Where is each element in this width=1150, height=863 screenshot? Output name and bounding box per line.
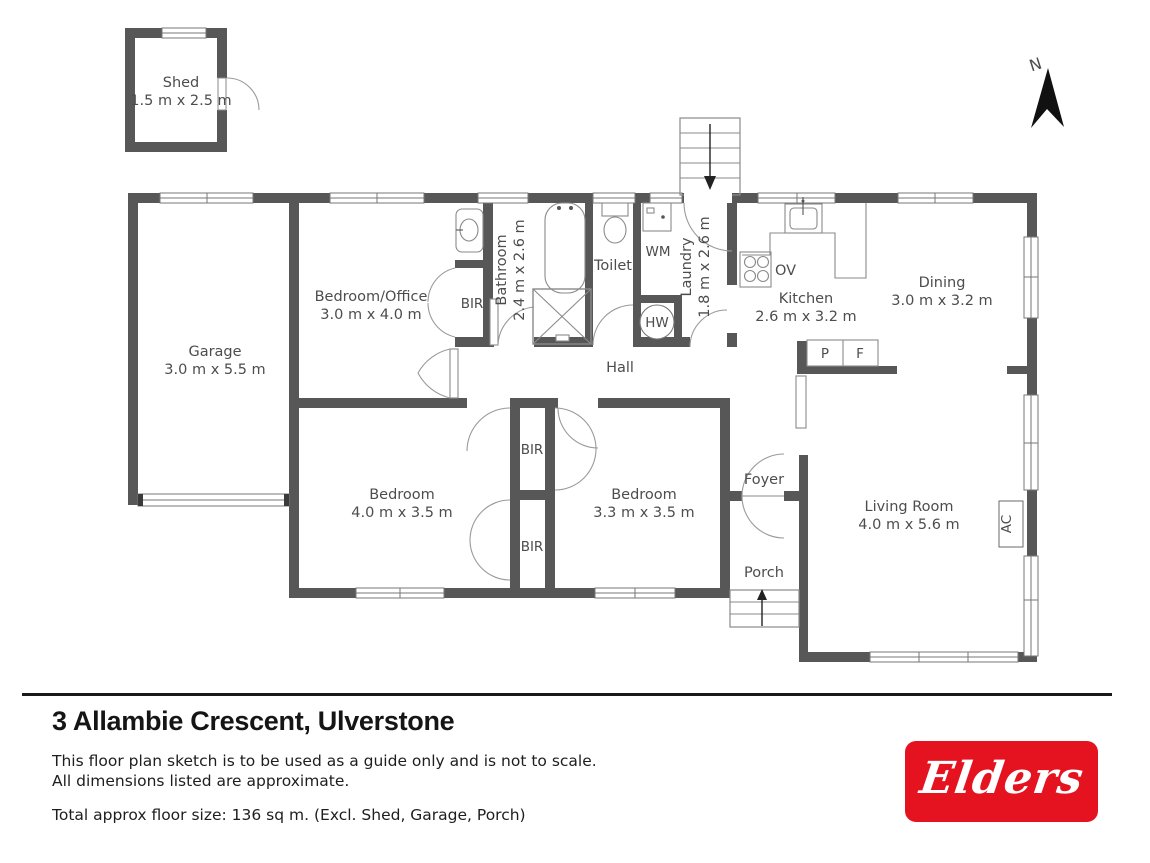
north-arrow: N [1027, 54, 1064, 128]
up-arrow-icon [757, 589, 767, 600]
door-bedroom-second [558, 408, 598, 448]
hw-label: HW [645, 315, 669, 331]
front-door [742, 454, 784, 538]
wall-dining-nib [1007, 366, 1027, 374]
laundry-dims: 1.8 m x 2.6 m [697, 216, 713, 317]
window-living-bottom [870, 652, 1018, 662]
wall-hall-south-a [289, 398, 467, 408]
shed-wall-bottom [125, 142, 227, 152]
dining-label: Dining [919, 275, 966, 291]
window-laundry [650, 193, 682, 203]
window-living-east-upper [1024, 395, 1038, 490]
foyer-label: Foyer [744, 472, 784, 488]
window-living-east-lower [1024, 556, 1038, 656]
elders-logo-text: Elders [916, 753, 1087, 810]
bathroom-dims: 2.4 m x 2.6 m [512, 219, 528, 320]
bathtub [545, 203, 585, 293]
laundry-label: Laundry [679, 237, 695, 297]
oven-cooktop [740, 252, 771, 287]
wall-hall-south-c [598, 398, 730, 408]
shed-wall-left [125, 28, 135, 152]
north-arrow-glyph [1031, 68, 1064, 128]
shed-dims: 1.5 m x 2.5 m [130, 93, 231, 109]
hall-label: Hall [606, 360, 634, 376]
wall-frontdoor-stub-right [784, 491, 799, 501]
shed: Shed 1.5 m x 2.5 m [125, 28, 259, 152]
garage-door [138, 494, 289, 506]
ac-label: AC [999, 515, 1015, 533]
wall-toilet-laundry [633, 203, 641, 337]
wm-label: WM [646, 244, 671, 260]
floor-plan-page: Shed 1.5 m x 2.5 m N [0, 0, 1150, 863]
shed-window [162, 28, 206, 38]
wall-hall-south-b [510, 398, 558, 408]
door-kitchen-cavity [796, 376, 806, 428]
fridge-label: F [856, 346, 864, 362]
wall-living-west [799, 455, 808, 662]
bedroom-office-label: Bedroom/Office [315, 289, 428, 305]
toilet-fixture [602, 203, 628, 243]
property-title: 3 Allambie Crescent, Ulverstone [52, 706, 454, 737]
window-bathroom [478, 193, 528, 203]
shed-label: Shed [163, 75, 200, 91]
footer-divider [22, 693, 1112, 696]
bathroom-label: Bathroom [494, 234, 510, 305]
wall-hall-north-d [682, 337, 690, 347]
shed-wall-right-upper [217, 28, 227, 78]
living-dims: 4.0 m x 5.6 m [858, 517, 959, 533]
wall-kitchen-stub [727, 333, 737, 347]
bedroom-office-dims: 3.0 m x 4.0 m [320, 307, 421, 323]
wall-hw-nook-right [674, 303, 682, 337]
door-toilet [593, 305, 633, 345]
elders-logo: Elders [905, 741, 1098, 822]
porch-steps [730, 589, 799, 627]
bedroom-second-dims: 3.3 m x 3.5 m [593, 505, 694, 521]
porch-label: Porch [744, 565, 784, 581]
bedroom-main-label: Bedroom [369, 487, 435, 503]
dining-dims: 3.0 m x 3.2 m [891, 293, 992, 309]
wall-bir-divider [510, 490, 555, 500]
bir-office-label: BIR [461, 296, 484, 312]
door-bedroom-main [467, 408, 510, 451]
wall-left [128, 203, 138, 505]
wall-laundry-kitchen [727, 203, 737, 285]
window-bedroom-second [595, 588, 675, 598]
wall-frontdoor-stub-left [730, 491, 742, 501]
north-label: N [1027, 54, 1044, 76]
door-bedroom-office [418, 349, 458, 398]
floor-plan-drawing: Shed 1.5 m x 2.5 m N [0, 0, 1150, 700]
wall-bedroom2-east [720, 398, 730, 598]
shower [533, 289, 591, 344]
living-label: Living Room [864, 499, 953, 515]
wall-hw-nook-top [633, 295, 682, 303]
garage-label: Garage [188, 344, 241, 360]
toilet-label: Toilet [593, 258, 632, 274]
down-arrow-icon [704, 176, 716, 190]
wall-nook-east [483, 203, 493, 268]
wall-pantry [797, 366, 897, 374]
bedroom-main-dims: 4.0 m x 3.5 m [351, 505, 452, 521]
window-bedroom-main [356, 588, 444, 598]
washing-machine [643, 203, 671, 231]
wall-bath-toilet [585, 203, 593, 345]
total-floor-size: Total approx floor size: 136 sq m. (Excl… [52, 806, 526, 824]
disclaimer-line-2: All dimensions listed are approximate. [52, 772, 349, 790]
house-walls [128, 193, 1037, 662]
kitchen-label: Kitchen [779, 291, 834, 307]
window-bedroom-office [330, 193, 424, 203]
bedroom-second-label: Bedroom [611, 487, 677, 503]
window-dining-top [898, 193, 973, 203]
bir-top-label: BIR [521, 442, 544, 458]
vanity [456, 209, 483, 252]
window-kitchen [758, 193, 835, 203]
bifold-bir-bottom [470, 500, 510, 580]
kitchen-dims: 2.6 m x 3.2 m [755, 309, 856, 325]
bir-bottom-label: BIR [521, 539, 544, 555]
pantry-fridge-units [807, 340, 878, 366]
doors [418, 268, 806, 580]
ov-label: OV [775, 263, 796, 279]
window-toilet [593, 193, 635, 203]
window-dining-east [1024, 237, 1038, 318]
bifold-bir-office [428, 268, 455, 337]
window-garage [160, 193, 253, 203]
shed-wall-right-lower [217, 110, 227, 152]
wall-nook-shelf [455, 260, 483, 268]
rear-steps [680, 118, 740, 195]
wall-pantry-stub [797, 341, 807, 368]
pantry-label: P [821, 346, 829, 362]
garage-dims: 3.0 m x 5.5 m [164, 362, 265, 378]
bifold-bir-top [555, 408, 596, 490]
disclaimer-line-1: This floor plan sketch is to be used as … [52, 752, 597, 770]
